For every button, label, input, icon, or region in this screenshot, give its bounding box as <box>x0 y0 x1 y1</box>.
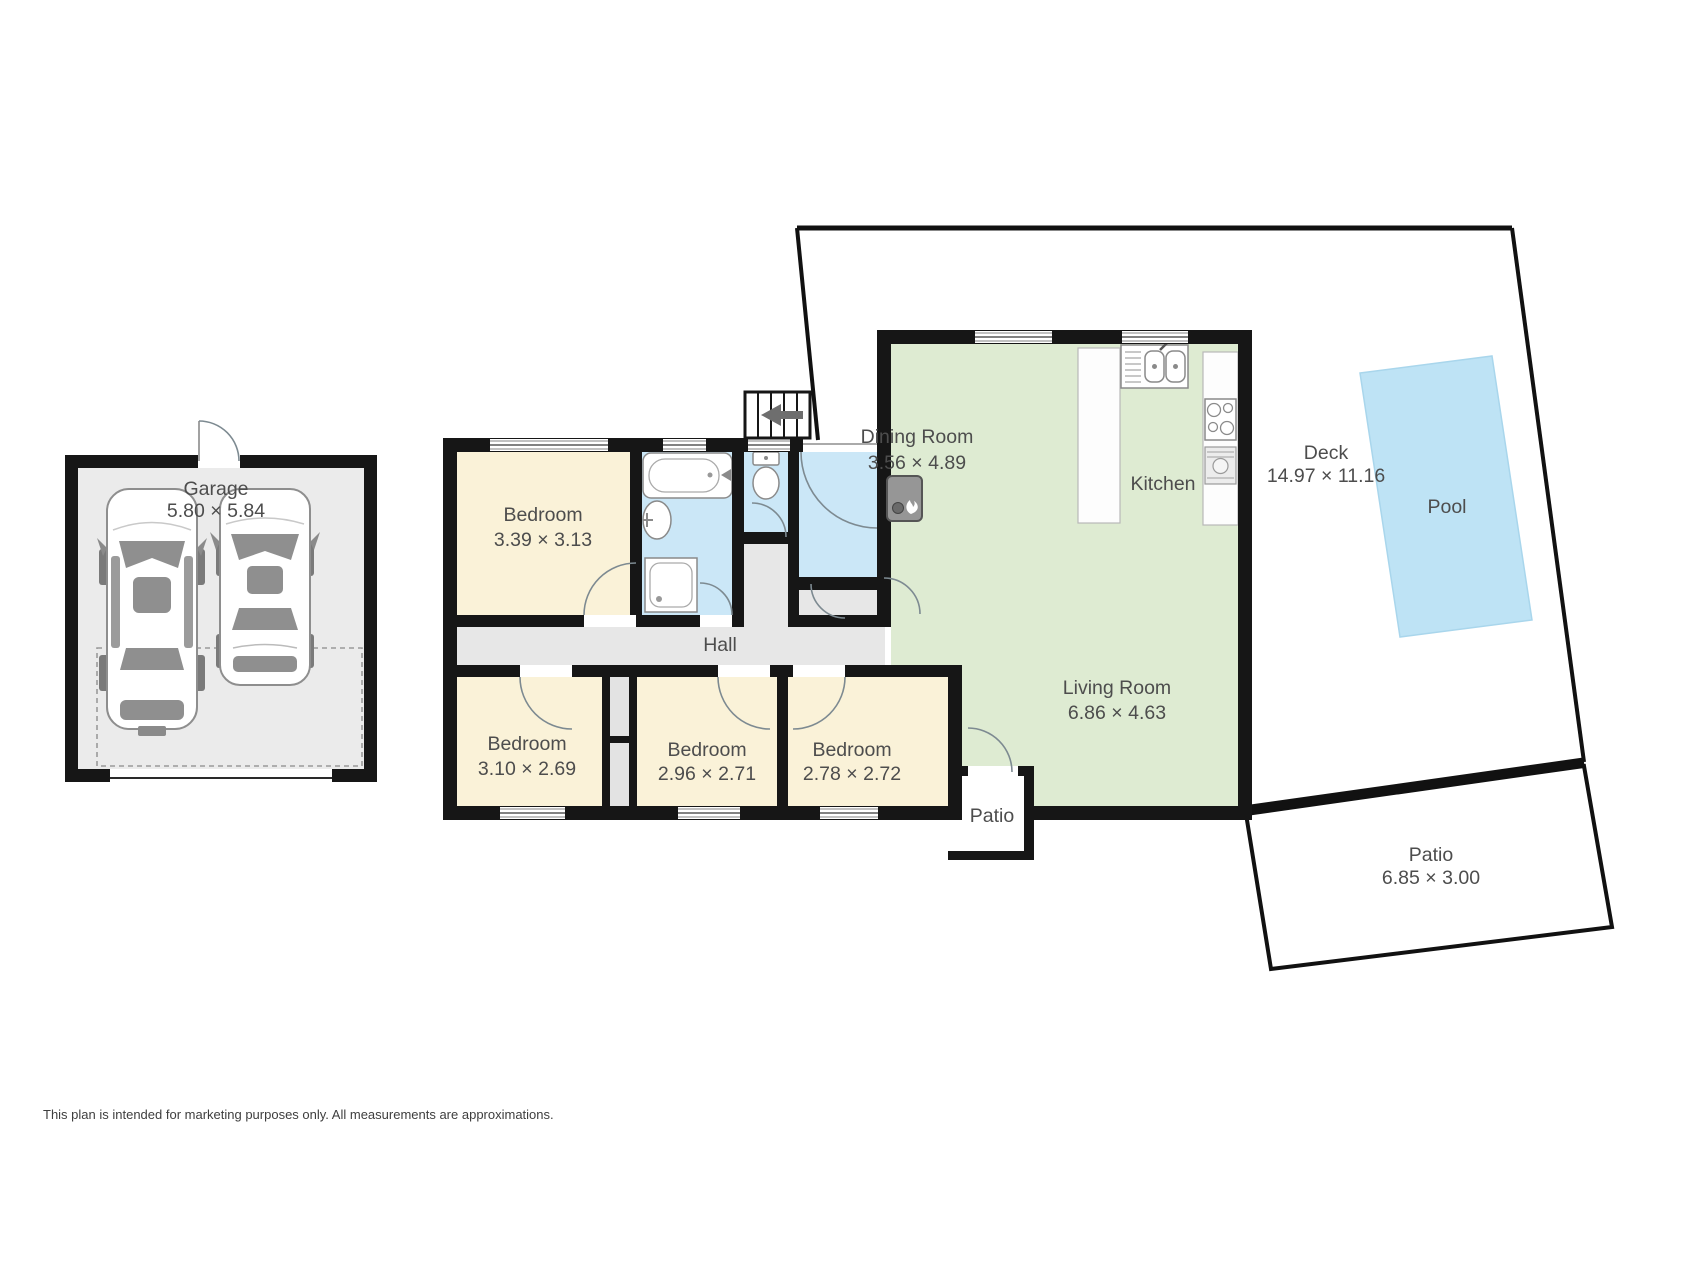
bedroom-right-label: Bedroom <box>812 739 891 761</box>
floor-plan: Garage 5.80 × 5.84 Bedroom 3.39 × 3.13 D… <box>0 0 1696 1280</box>
oven-icon <box>1205 447 1236 484</box>
garage-entry-door-icon <box>199 421 239 461</box>
hall-label: Hall <box>703 634 737 656</box>
dining-label: Dining Room <box>861 426 974 448</box>
bathtub-icon <box>643 453 732 498</box>
window-icon <box>1122 331 1188 343</box>
patio-door-label: Patio <box>970 805 1015 827</box>
car-icon <box>97 489 207 736</box>
pool-label: Pool <box>1427 496 1466 518</box>
kitchen-sink-icon <box>1121 343 1188 388</box>
stove-icon <box>1205 399 1236 440</box>
patio-rear-dims: 6.85 × 3.00 <box>1382 867 1480 889</box>
disclaimer-text: This plan is intended for marketing purp… <box>43 1107 554 1122</box>
bedroom-top-label: Bedroom <box>503 504 582 526</box>
bath-sink-icon <box>643 501 671 539</box>
toilet-icon <box>753 452 779 499</box>
stairs-icon <box>745 392 810 438</box>
laundry-floor <box>799 452 877 577</box>
bedroom-mid-label: Bedroom <box>667 739 746 761</box>
window-icon <box>500 807 565 819</box>
window-icon <box>678 807 740 819</box>
bedroom-left-dims: 3.10 × 2.69 <box>478 758 576 780</box>
dining-dims: 3.56 × 4.89 <box>868 452 966 474</box>
window-icon <box>748 439 790 451</box>
fireplace-icon <box>887 476 922 521</box>
bedroom-left-label: Bedroom <box>487 733 566 755</box>
garage-dims: 5.80 × 5.84 <box>167 500 265 522</box>
garage <box>65 421 377 782</box>
kitchen-label: Kitchen <box>1130 473 1195 495</box>
window-icon <box>490 439 608 451</box>
deck-label: Deck <box>1304 442 1349 464</box>
bedroom-right-dims: 2.78 × 2.72 <box>803 763 901 785</box>
window-icon <box>820 807 878 819</box>
garage-label: Garage <box>183 478 248 500</box>
hall-floor <box>457 627 885 665</box>
living-label: Living Room <box>1063 677 1171 699</box>
window-icon <box>663 439 706 451</box>
living-dims: 6.86 × 4.63 <box>1068 702 1166 724</box>
deck-dims: 14.97 × 11.16 <box>1267 465 1385 487</box>
shower-icon <box>645 558 697 612</box>
window-icon <box>975 331 1052 343</box>
patio-rear-label: Patio <box>1409 844 1454 866</box>
bedroom-mid-dims: 2.96 × 2.71 <box>658 763 756 785</box>
floor-plan-page: Garage 5.80 × 5.84 Bedroom 3.39 × 3.13 D… <box>0 0 1696 1280</box>
kitchen-counter <box>1078 348 1120 523</box>
bedroom-top-dims: 3.39 × 3.13 <box>494 529 592 551</box>
